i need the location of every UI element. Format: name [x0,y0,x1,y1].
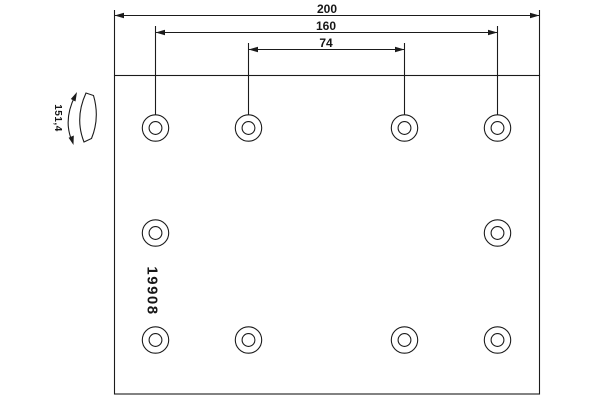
arrow-right-icon [395,47,405,52]
dimension-label-total-length: 200 [317,3,337,15]
arrow-left-icon [115,13,125,18]
curvature-arrow-icon [68,92,77,145]
brake-lining-technical-drawing: 200 160 74 151,4 19908 [0,0,600,400]
arrow-right-icon [530,13,540,18]
lining-profile-icon [80,93,97,142]
arrow-left-icon [156,30,166,35]
arrow-left-icon [249,47,259,52]
arrow-right-icon [488,30,498,35]
lining-plate-outline [115,76,540,395]
curvature-radius-label: 151,4 [52,104,62,132]
part-number-label: 19908 [145,266,160,315]
dimension-label-inner-spacing: 74 [319,37,332,49]
drawing-graphics [0,0,600,400]
dimension-label-outer-spacing: 160 [316,20,336,32]
